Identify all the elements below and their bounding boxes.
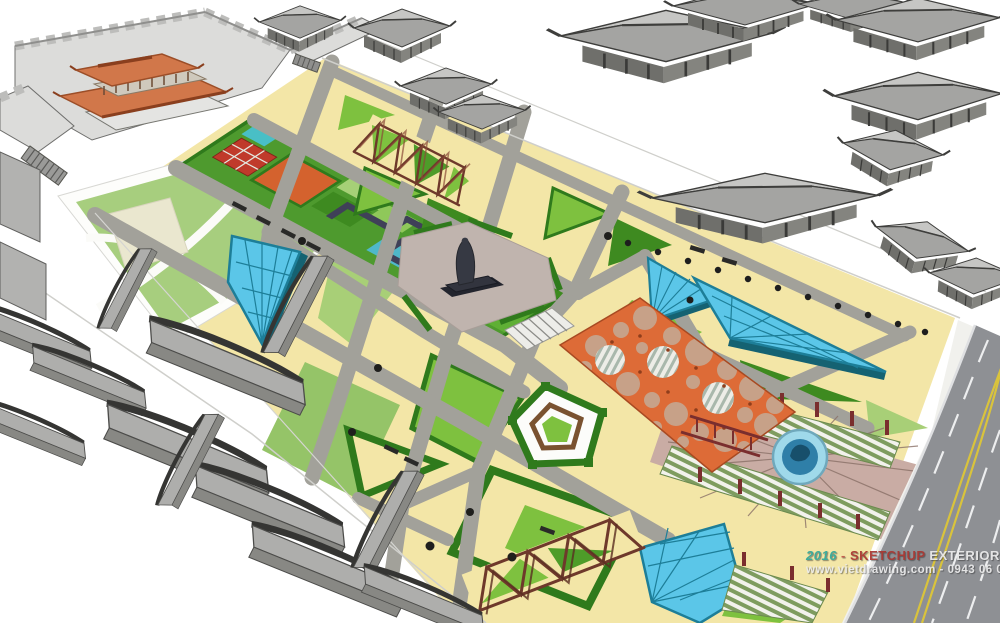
watermark-suffix: EXTERIOR VOL.16 xyxy=(929,548,1000,563)
sketchup-render: 2016 - SKETCHUP EXTERIOR VOL.16 www.viet… xyxy=(0,0,1000,623)
watermark-title: 2016 - SKETCHUP EXTERIOR VOL.16 xyxy=(806,548,1000,563)
watermark: 2016 - SKETCHUP EXTERIOR VOL.16 www.viet… xyxy=(806,548,1000,576)
watermark-separator: - xyxy=(841,548,846,563)
scene-canvas xyxy=(0,0,1000,623)
fountain xyxy=(773,430,827,484)
watermark-contact: www.vietdrawing.com - 0943 06 06 08 xyxy=(806,564,1000,576)
west-walls xyxy=(0,152,46,320)
watermark-brand: SKETCHUP xyxy=(850,548,925,563)
watermark-year: 2016 xyxy=(806,548,837,563)
